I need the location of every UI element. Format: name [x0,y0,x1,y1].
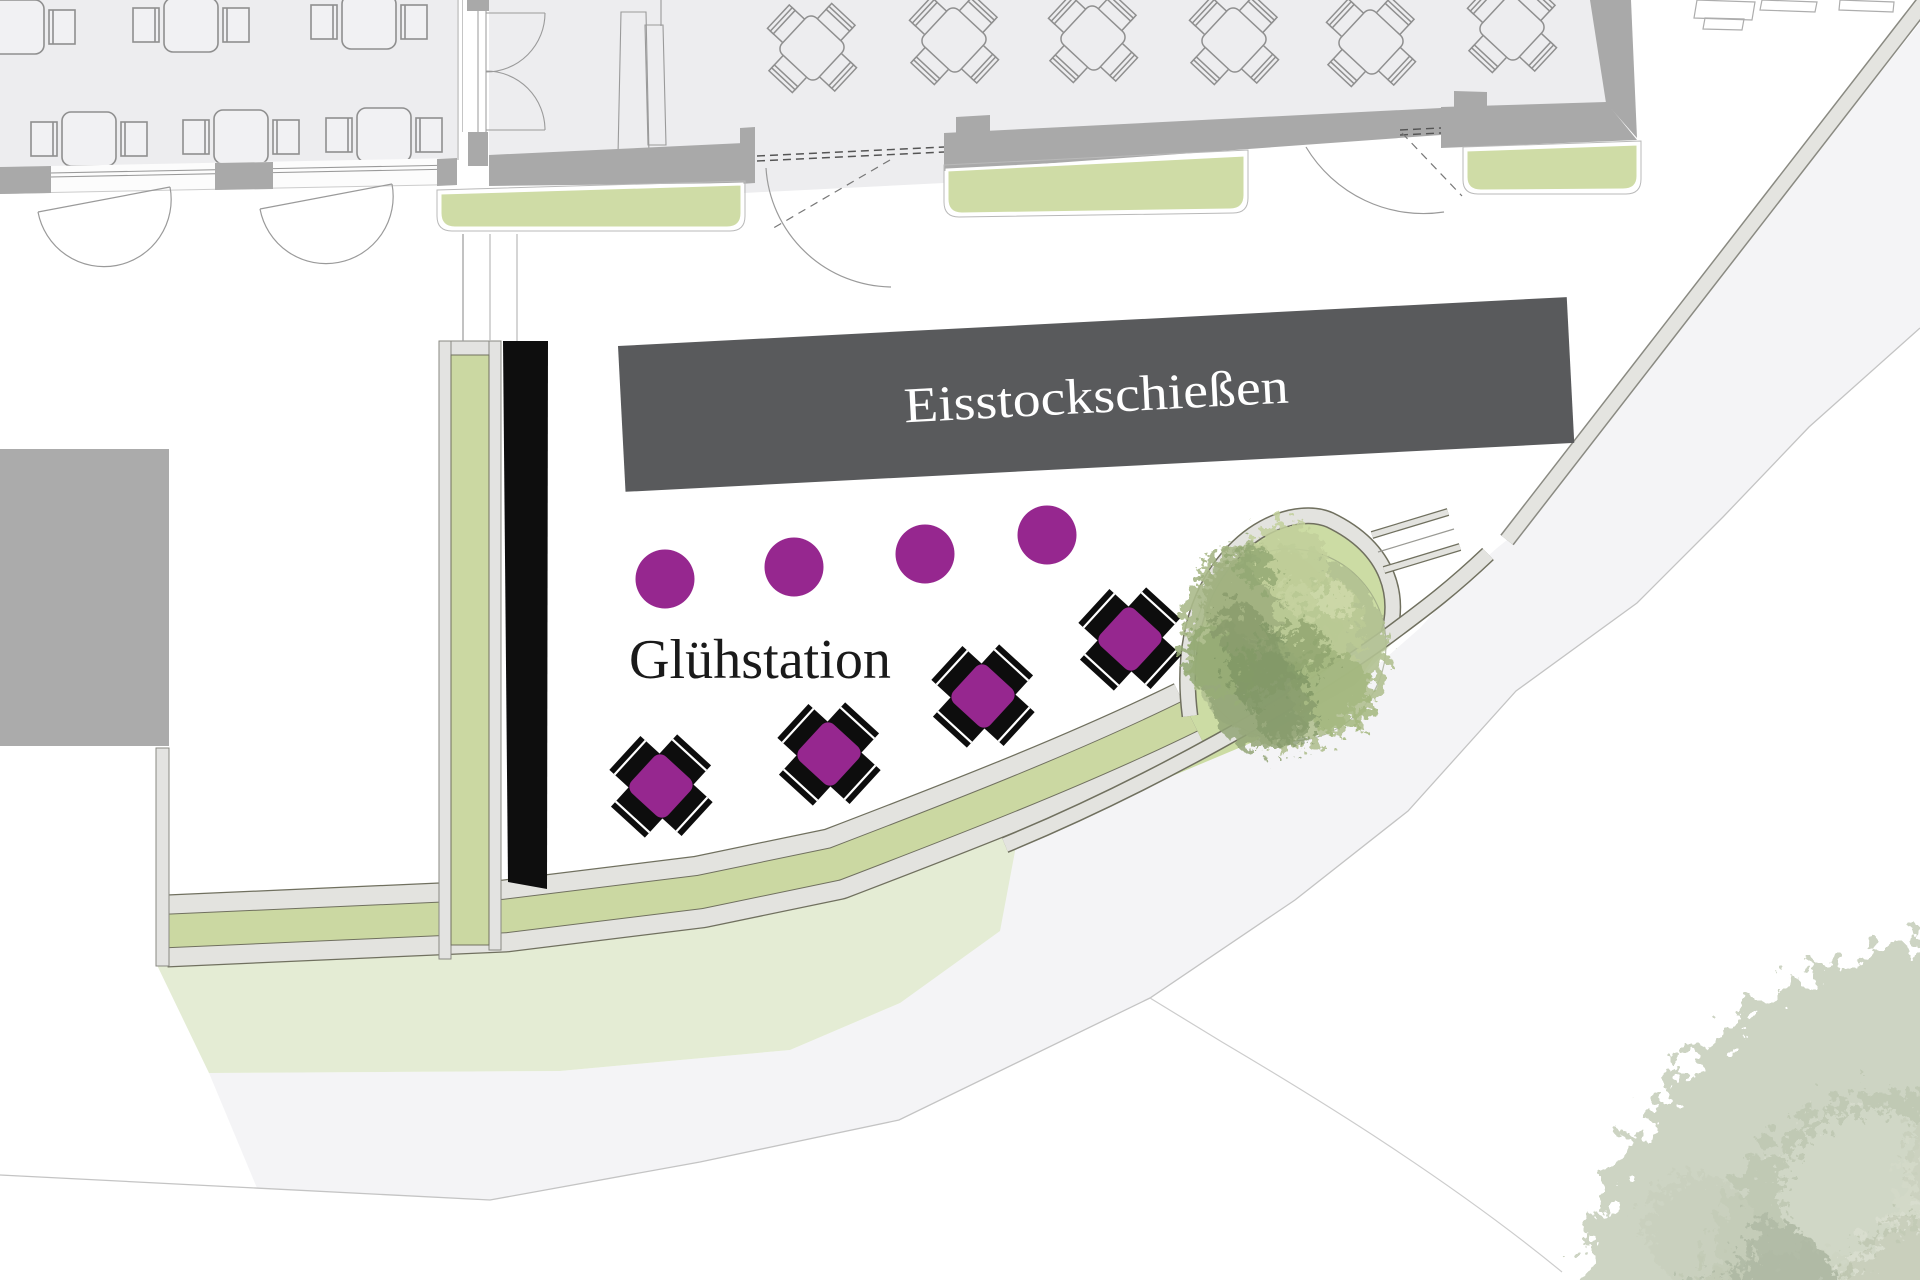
svg-text:Glühstation: Glühstation [629,629,891,691]
